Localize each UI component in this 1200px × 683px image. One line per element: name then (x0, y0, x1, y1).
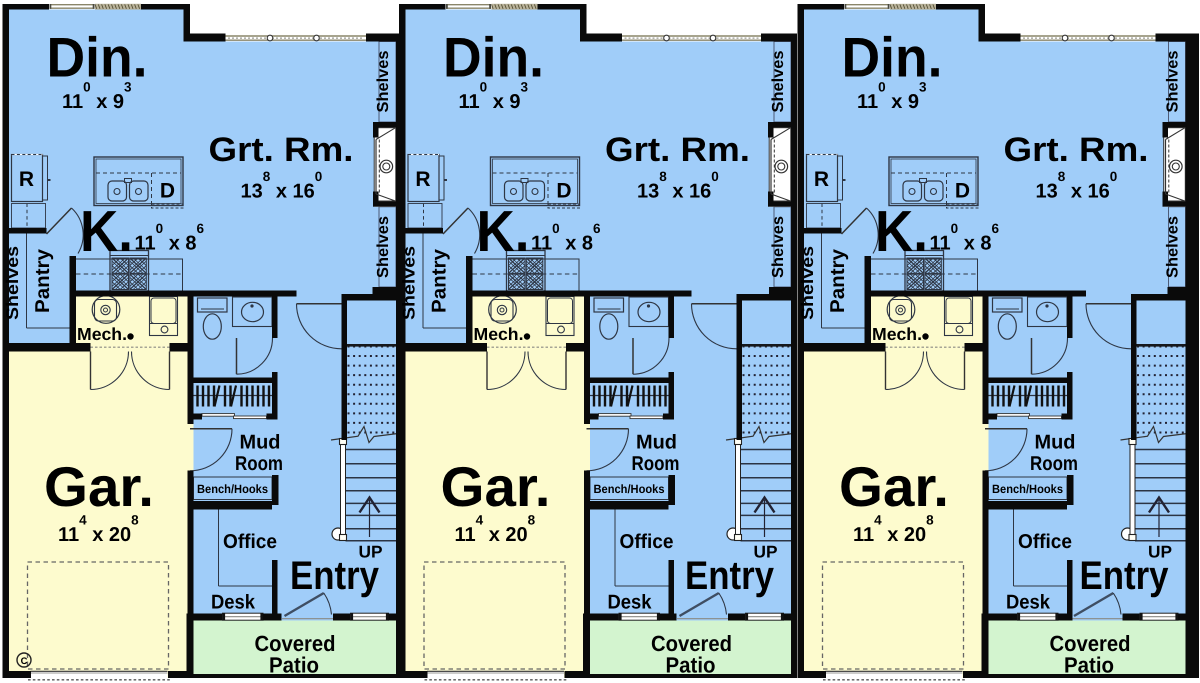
svg-text:Pantry: Pantry (827, 248, 849, 313)
svg-text:Shelves: Shelves (798, 246, 817, 320)
svg-text:Shelves: Shelves (375, 216, 392, 278)
svg-text:Room: Room (1030, 453, 1078, 475)
svg-text:Mech.: Mech. (872, 324, 922, 344)
svg-text:Gar.: Gar. (44, 455, 154, 518)
svg-text:Din.: Din. (443, 26, 544, 89)
svg-text:Shelves: Shelves (1165, 216, 1182, 278)
svg-text:Shelves: Shelves (770, 50, 787, 112)
svg-text:UP: UP (359, 543, 383, 562)
svg-text:Room: Room (632, 453, 680, 475)
svg-text:D: D (955, 180, 970, 203)
svg-text:Office: Office (620, 531, 674, 553)
svg-text:Gar.: Gar. (839, 455, 949, 518)
svg-text:Desk: Desk (608, 592, 653, 614)
svg-text:Shelves: Shelves (3, 246, 22, 320)
svg-text:Pantry: Pantry (429, 248, 451, 313)
svg-text:Patio: Patio (269, 653, 319, 678)
svg-text:K.: K. (80, 199, 133, 264)
svg-text:UP: UP (1148, 543, 1172, 562)
svg-text:Grt. Rm.: Grt. Rm. (605, 131, 750, 169)
svg-text:R: R (19, 168, 34, 191)
svg-text:Shelves: Shelves (1165, 50, 1182, 112)
svg-text:Bench/Hooks: Bench/Hooks (197, 482, 268, 496)
svg-text:D: D (160, 180, 175, 203)
svg-text:Pantry: Pantry (32, 248, 54, 313)
svg-text:K.: K. (477, 199, 530, 264)
svg-text:Mud: Mud (636, 432, 677, 454)
svg-text:Grt. Rm.: Grt. Rm. (1004, 131, 1149, 169)
svg-text:R: R (415, 168, 430, 191)
svg-text:R: R (814, 168, 829, 191)
svg-text:Mech.: Mech. (474, 324, 524, 344)
svg-text:Patio: Patio (666, 653, 716, 678)
svg-text:Office: Office (1018, 531, 1072, 553)
svg-text:Gar.: Gar. (441, 455, 551, 518)
svg-text:Mud: Mud (1035, 432, 1076, 454)
svg-text:UP: UP (754, 543, 778, 562)
svg-text:K.: K. (875, 199, 928, 264)
svg-text:Desk: Desk (211, 592, 256, 614)
svg-text:D: D (556, 180, 571, 203)
svg-text:Office: Office (223, 531, 277, 553)
svg-text:Din.: Din. (842, 26, 943, 89)
svg-text:Shelves: Shelves (770, 216, 787, 278)
svg-text:Mech.: Mech. (77, 324, 127, 344)
svg-text:C: C (21, 656, 28, 667)
svg-text:Bench/Hooks: Bench/Hooks (992, 482, 1063, 496)
svg-text:Bench/Hooks: Bench/Hooks (594, 482, 665, 496)
svg-text:Mud: Mud (240, 432, 281, 454)
svg-text:Grt. Rm.: Grt. Rm. (209, 131, 354, 169)
svg-text:Patio: Patio (1064, 653, 1114, 678)
svg-text:Shelves: Shelves (400, 246, 419, 320)
svg-text:Din.: Din. (47, 26, 148, 89)
svg-text:Shelves: Shelves (375, 50, 392, 112)
svg-text:Desk: Desk (1006, 592, 1051, 614)
svg-text:Room: Room (235, 453, 283, 475)
